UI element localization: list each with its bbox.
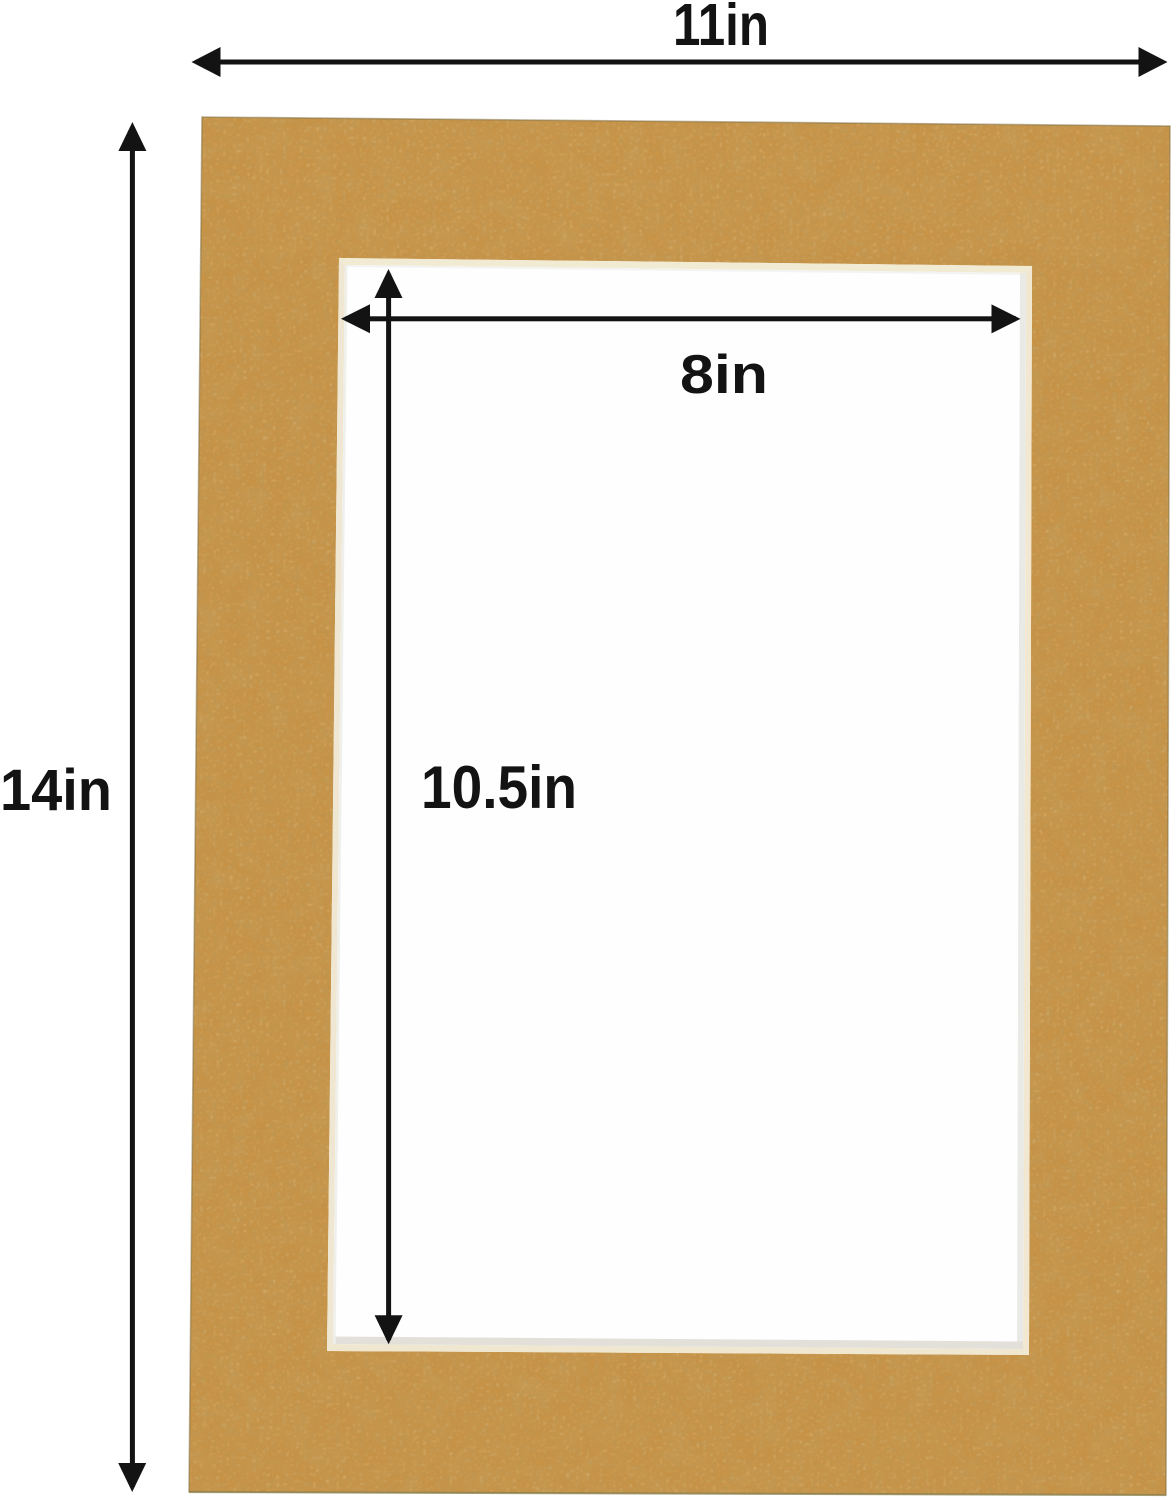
svg-text:10.5in: 10.5in xyxy=(421,754,577,821)
svg-text:8in: 8in xyxy=(680,343,768,405)
svg-text:11in: 11in xyxy=(673,0,769,58)
svg-text:14in: 14in xyxy=(0,758,112,823)
